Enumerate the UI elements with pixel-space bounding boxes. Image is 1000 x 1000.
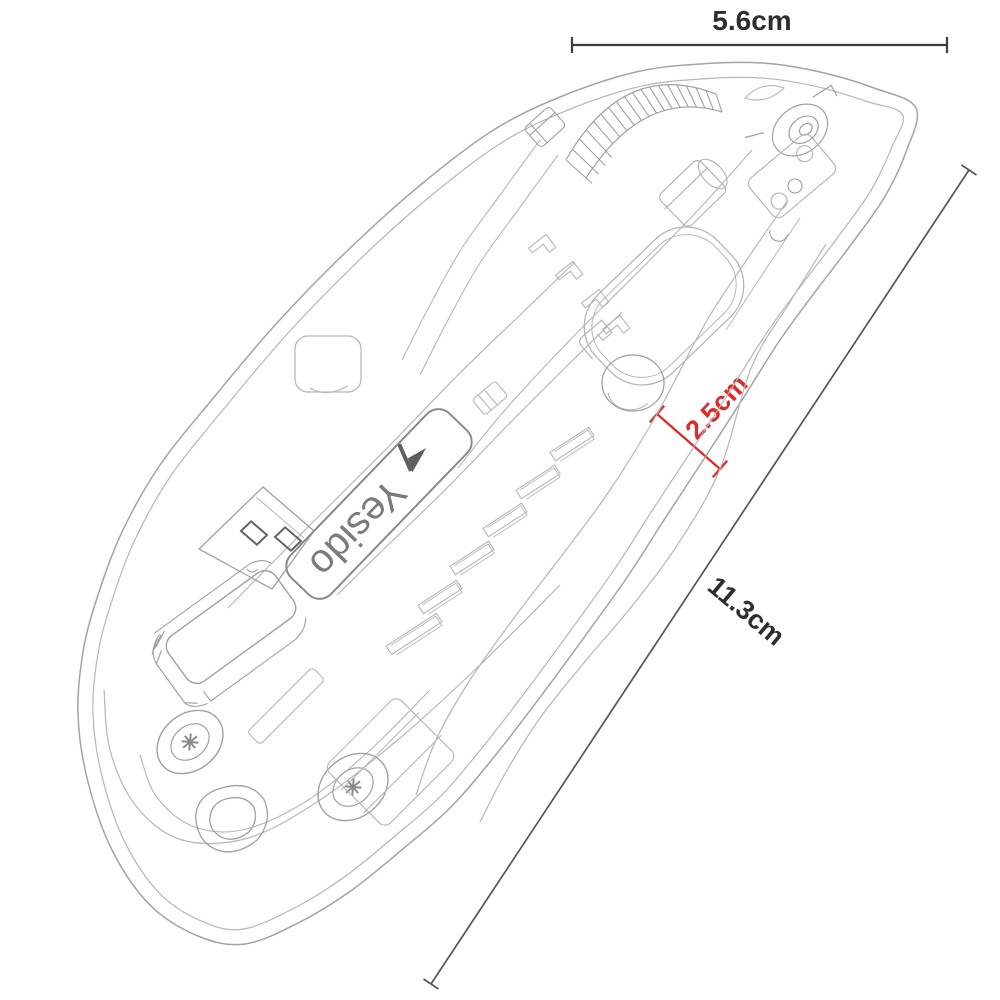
svg-text:2.5cm: 2.5cm [679, 369, 753, 445]
svg-text:5.6cm: 5.6cm [712, 5, 791, 36]
svg-text:11.3cm: 11.3cm [702, 571, 790, 652]
